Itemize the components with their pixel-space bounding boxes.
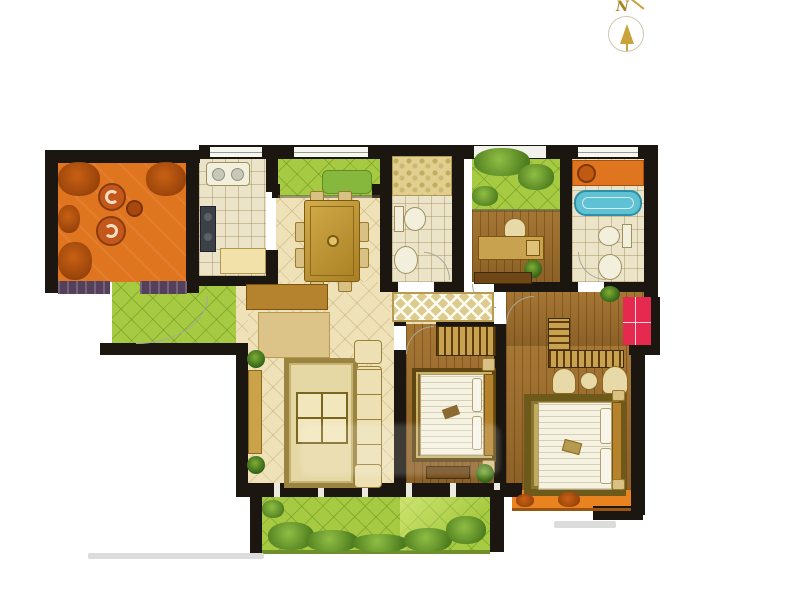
pillow [600, 448, 612, 484]
pillow [600, 408, 612, 444]
balcony-sill-line [278, 195, 380, 198]
garden-bush [262, 500, 284, 518]
chair-highlight [104, 224, 118, 238]
terrace-foliage [58, 205, 80, 233]
garden-bush [352, 534, 408, 552]
dining-chair [359, 222, 369, 242]
balcony-foliage [516, 494, 534, 507]
washing-machine [577, 164, 596, 183]
potted-plant [247, 350, 265, 368]
wash-basin [394, 246, 418, 274]
terrace-window-sill [140, 281, 187, 294]
wall-segment [45, 150, 58, 293]
wall-segment [631, 353, 645, 515]
drop-shadow [88, 553, 264, 559]
terrace-window-sill [58, 281, 110, 294]
terrace-chair [96, 216, 126, 246]
wall-segment [100, 343, 248, 355]
wall-segment [434, 282, 464, 292]
wardrobe-hangers [548, 318, 570, 352]
balcony-sill-line [472, 209, 560, 212]
desk-chair [504, 218, 526, 238]
dining-chair [359, 248, 369, 268]
compass: N [598, 0, 652, 62]
chair-highlight [105, 190, 119, 204]
kitchen-stove [200, 206, 216, 252]
low-cabinet [474, 272, 532, 284]
shower-area [392, 156, 452, 196]
pillow [472, 378, 482, 412]
stove-burner [204, 213, 212, 221]
terrace-foliage [58, 242, 92, 280]
nightstand [482, 358, 495, 371]
compass-tail [626, 43, 628, 51]
nightstand [612, 390, 625, 401]
drop-shadow [554, 521, 616, 528]
toilet-tank [394, 206, 404, 232]
wall-segment [45, 150, 200, 163]
terrace-table [126, 200, 143, 217]
armchair [354, 340, 382, 364]
garden-bush [446, 516, 486, 544]
toilet-bowl [598, 226, 620, 246]
side-table [580, 372, 598, 390]
desk [478, 236, 544, 260]
armchair [552, 368, 576, 394]
entry-mat [258, 312, 330, 358]
window [578, 147, 638, 157]
garden-bush [404, 528, 452, 552]
potted-plant [600, 286, 620, 302]
terrace-foliage [146, 162, 186, 196]
balcony-foliage [558, 492, 580, 507]
wall-segment [380, 282, 398, 292]
wall-segment [560, 152, 572, 292]
compass-north-label: N [616, 0, 629, 14]
wall-segment [186, 150, 199, 293]
garden-foliage [518, 164, 554, 190]
potted-plant [247, 456, 265, 474]
watermark [300, 424, 500, 476]
floor-plan: N [0, 0, 800, 611]
terrace-foliage [58, 162, 100, 196]
stove-burner [204, 233, 212, 241]
sink-basin [212, 168, 225, 181]
kitchen-counter [220, 248, 266, 274]
dining-table [304, 200, 360, 282]
desk-drawers [526, 240, 540, 256]
toilet-tank [622, 224, 632, 248]
wardrobe-hangers [436, 326, 496, 356]
wall-segment [380, 152, 392, 292]
hallway-runner-rug [392, 292, 494, 322]
bathtub [574, 190, 642, 216]
wall-segment [250, 490, 262, 554]
window [210, 147, 262, 157]
wall-segment [560, 282, 578, 292]
red-closet [623, 297, 651, 345]
dining-chair [338, 281, 352, 292]
window [294, 147, 368, 157]
laundry-cabinet [572, 160, 644, 186]
bathtub-rim [582, 197, 634, 209]
terrace-chair [98, 183, 126, 211]
wall-segment [490, 490, 504, 552]
toilet-bowl [404, 207, 426, 231]
wall-segment [651, 297, 660, 347]
kitchen-sink [206, 162, 250, 186]
wall-segment [236, 345, 248, 493]
nightstand [612, 479, 625, 490]
wall-segment [452, 152, 464, 292]
bed-throw [442, 405, 460, 420]
shoe-cabinet [246, 284, 328, 310]
sink-basin [231, 168, 244, 181]
garden-foliage [472, 186, 498, 206]
wall-segment [644, 145, 658, 297]
compass-ring [608, 16, 644, 52]
headboard [612, 402, 622, 490]
balcony-edge [512, 508, 631, 511]
garden-bush [306, 530, 358, 552]
bed-throw [562, 439, 582, 455]
table-centerpiece [327, 235, 339, 247]
compass-arrow [620, 24, 634, 44]
tv-console [248, 370, 262, 454]
